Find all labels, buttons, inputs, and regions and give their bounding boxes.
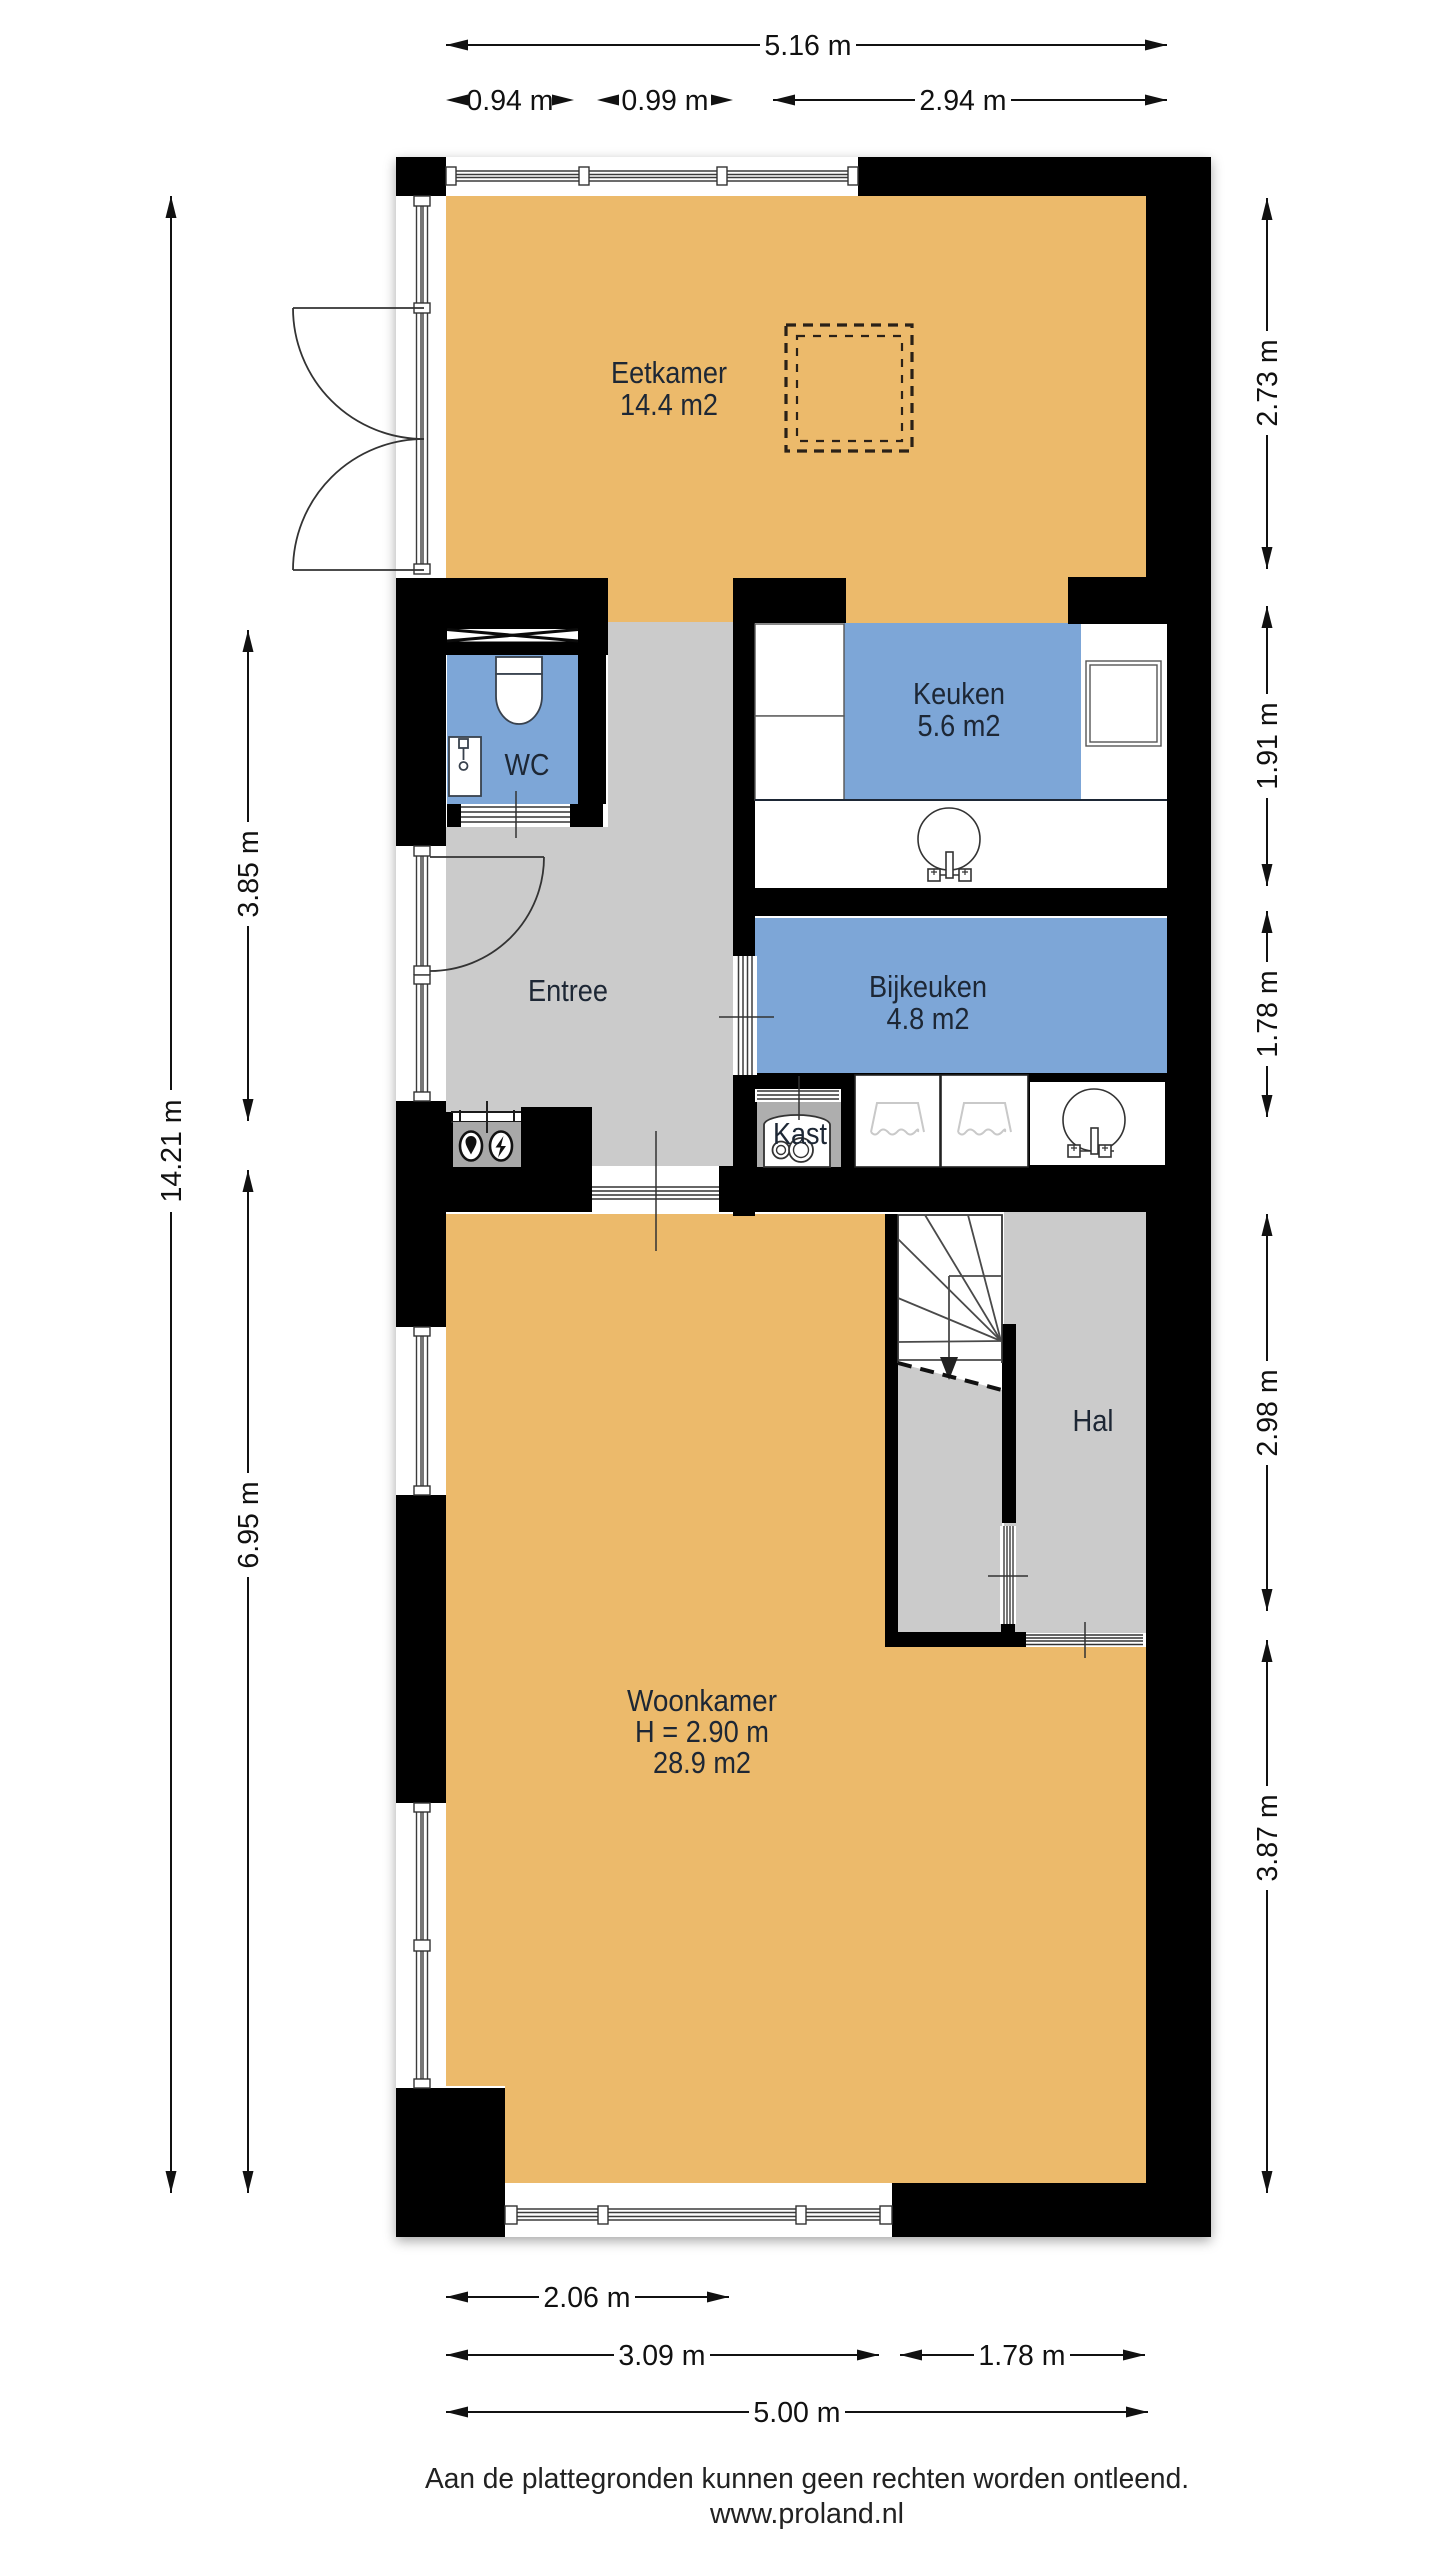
svg-text:0.94 m: 0.94 m (466, 85, 553, 117)
svg-text:1.78 m: 1.78 m (1252, 970, 1284, 1057)
svg-text:4.8 m2: 4.8 m2 (887, 1002, 970, 1036)
svg-text:1.78 m: 1.78 m (978, 2340, 1065, 2372)
svg-text:14.21 m: 14.21 m (156, 1100, 188, 1203)
svg-text:Aan de plattegronden kunnen ge: Aan de plattegronden kunnen geen rechten… (425, 2463, 1189, 2495)
svg-text:Hal: Hal (1073, 1404, 1114, 1438)
svg-text:www.proland.nl: www.proland.nl (709, 2498, 904, 2530)
svg-text:2.94 m: 2.94 m (919, 85, 1006, 117)
svg-text:3.85 m: 3.85 m (233, 830, 265, 917)
svg-text:2.06 m: 2.06 m (543, 2282, 630, 2314)
svg-text:14.4 m2: 14.4 m2 (620, 388, 718, 422)
svg-text:28.9 m2: 28.9 m2 (653, 1746, 751, 1780)
svg-text:5.6 m2: 5.6 m2 (918, 709, 1001, 743)
svg-text:H = 2.90 m: H = 2.90 m (635, 1715, 769, 1749)
svg-text:3.87 m: 3.87 m (1252, 1794, 1284, 1881)
svg-text:Keuken: Keuken (913, 677, 1005, 711)
svg-text:Kast: Kast (773, 1117, 827, 1151)
svg-text:1.91 m: 1.91 m (1252, 702, 1284, 789)
svg-text:0.99 m: 0.99 m (621, 85, 708, 117)
svg-text:WC: WC (505, 748, 550, 782)
svg-text:5.16 m: 5.16 m (764, 30, 851, 62)
svg-text:Woonkamer: Woonkamer (627, 1684, 777, 1718)
svg-text:Entree: Entree (528, 974, 608, 1008)
svg-text:6.95 m: 6.95 m (233, 1481, 265, 1568)
svg-text:5.00 m: 5.00 m (753, 2397, 840, 2429)
svg-text:2.98 m: 2.98 m (1252, 1369, 1284, 1456)
svg-text:2.73 m: 2.73 m (1252, 339, 1284, 426)
svg-text:3.09 m: 3.09 m (618, 2340, 705, 2372)
svg-text:Bijkeuken: Bijkeuken (869, 970, 987, 1004)
svg-text:Eetkamer: Eetkamer (611, 356, 727, 390)
